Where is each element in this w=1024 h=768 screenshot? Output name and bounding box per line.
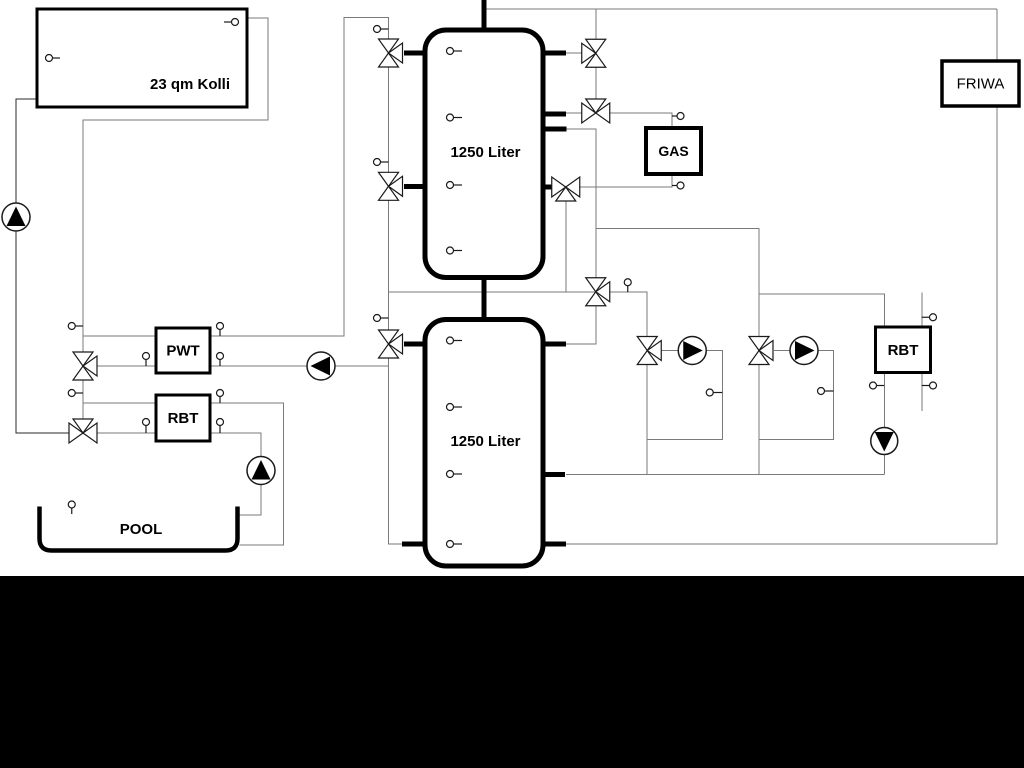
svg-text:GAS: GAS <box>658 143 688 159</box>
svg-text:POOL: POOL <box>120 521 163 538</box>
svg-text:FRIWA: FRIWA <box>957 76 1005 93</box>
svg-text:PWT: PWT <box>166 343 199 360</box>
svg-text:RBT: RBT <box>888 342 919 359</box>
svg-text:1250 Liter: 1250 Liter <box>450 433 520 450</box>
svg-text:1250 Liter: 1250 Liter <box>450 144 520 161</box>
svg-text:23 qm Kolli: 23 qm Kolli <box>150 76 230 93</box>
svg-text:RBT: RBT <box>168 410 199 427</box>
